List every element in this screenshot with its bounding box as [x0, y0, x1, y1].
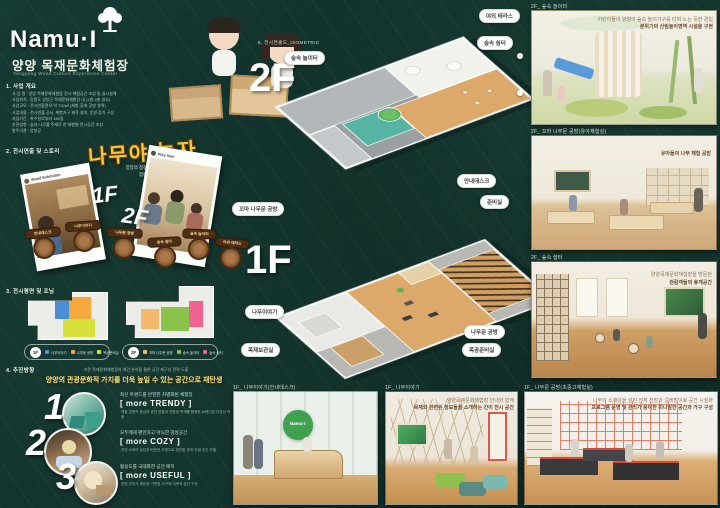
item-sub-2: 자연 소재의 질감과 따뜻한 조명으로 편안한 휴게·관람 공간 연출 [121, 448, 233, 453]
floor-wood [234, 475, 377, 504]
bookshelf [536, 274, 569, 361]
legend-item: 숲속 쉼터 [203, 350, 222, 355]
card-handle: Play time [158, 152, 175, 159]
render-caption-bold: 프로그램 운영 및 관리가 용이한 미니멀한 공간과 가구 구성 [553, 404, 713, 411]
stump-icon [188, 238, 211, 261]
ottoman [459, 482, 485, 497]
person-student [656, 441, 664, 459]
legend-item: 목공준비실 [97, 350, 119, 355]
logo-wordmark: Namu·I [10, 26, 97, 54]
legend-2f: 2F 꼬마 나무문 공방 숲속 놀이터 숲속 쉼터 [122, 344, 218, 360]
stool [646, 336, 653, 348]
work-bench [613, 461, 678, 480]
person [698, 313, 707, 339]
visitor [243, 435, 253, 469]
kids-table [650, 202, 694, 214]
section1-heading: 1. 사업 개요 [6, 82, 36, 90]
zone-orange [69, 297, 91, 319]
direction-intro: 기존 목재문화체험장의 여건 분석을 통한 공간 재구성 전략 도출 [36, 367, 236, 373]
info-screen [396, 423, 427, 445]
render-school-workshop: 나무의 소재감을 살린 전체 천장과 걸레받이로 공간 시설화 프로그램 운영 … [524, 391, 718, 505]
section2-heading: 2. 전시연출 및 스토리 [6, 147, 60, 155]
render-caption: 나무의 소재감을 살린 전체 천장과 걸레받이로 공간 시설화 [553, 397, 713, 404]
item-number-2: 2 [26, 422, 46, 464]
work-table [428, 311, 440, 317]
kids-table [547, 211, 595, 225]
render-caption-bold: 분위기의 산림놀이영역 시설을 구현 [563, 23, 713, 30]
avatar-icon [24, 178, 30, 184]
callout-wood-workshop: 나무문 공방 [464, 325, 505, 339]
section3-heading: 3. 전시평면 및 조닝 [6, 287, 54, 295]
legend-item: 숲속 놀이터 [177, 350, 200, 355]
section4-heading: 4. 추진방향 [6, 366, 34, 374]
render-label-wood-story: 1F_ 나무이야기 [385, 384, 420, 391]
tree-post [669, 40, 680, 103]
item-number-3: 3 [56, 456, 76, 498]
poster-title-en: Yangyang Wood Culture Experience Center [13, 71, 118, 76]
inner-room [298, 312, 343, 338]
zone-blue [55, 301, 69, 319]
play-structure [595, 31, 643, 97]
kids-table [609, 215, 664, 230]
zone-badge: 숲속 놀이터 [181, 228, 216, 263]
item-keyword-1: [ more TRENDY ] [120, 399, 192, 408]
zone-peach [141, 309, 159, 329]
item-keyword-2: [ more COZY ] [120, 437, 180, 446]
zone-badge: 나무이야기 [65, 220, 103, 256]
legend-1f: 1F 나무이야기 나무문 공방 목공준비실 [24, 344, 110, 360]
render-forest-rest: 양양목재문화체험장을 방문한 관람객들의 휴게공간 [531, 261, 717, 378]
legend-item: 나무이야기 [45, 350, 67, 355]
zone-pink [189, 301, 203, 327]
stump-icon [32, 236, 56, 260]
render-caption-bold: 관람객들의 휴게공간 [582, 279, 712, 286]
receptionist [303, 437, 312, 451]
person-child [444, 439, 452, 459]
item-sub-1: 체험 콘텐츠 중심의 공간 연출과 친환경 목재를 활용한 트렌디한 디자인 적… [121, 410, 233, 421]
render-label-school-workshop: 1F_ 나무문 공방(초중고체험실) [524, 384, 593, 391]
kid-boy [204, 20, 244, 78]
render-kids-workshop: 유아들의 나무 체험 공방 [531, 135, 717, 250]
presentation-board: Namu·I 양양 목재문화체험장 Yangyang Wood Culture … [0, 0, 720, 508]
callout-woodwork-prep: 목공준비실 [462, 343, 501, 357]
person [543, 70, 552, 96]
direction-headline: 양양의 관광문화적 가치를 더욱 높일 수 있는 공간으로 재탄생 [28, 375, 240, 385]
umbrella-icon [443, 60, 465, 73]
floor-label-1f-center: 1F [245, 238, 292, 283]
callout-forest-playground: 숲속 놀이터 [284, 51, 325, 65]
red-door-frame [488, 412, 506, 461]
work-table [402, 315, 414, 321]
item-photo-3 [74, 461, 118, 505]
person-child [470, 446, 478, 464]
person-student [571, 439, 579, 457]
ottoman [483, 475, 507, 490]
legend-item: 나무문 공방 [71, 350, 94, 355]
render-caption: 양양목재문화체험장 안내와 함께 [394, 397, 514, 404]
render-caption-bold: 목재와 관련된 정보들을 소개하는 간이 전시 공간 [394, 404, 514, 411]
legend-item: 꼬마 나무문 공방 [143, 350, 173, 355]
cafe-table [628, 343, 639, 354]
callout-forest-rest: 숲속 쉼터 [477, 36, 513, 50]
item-number-1: 1 [44, 386, 64, 428]
callout-wood-story: 나무이야기 [245, 305, 284, 319]
floor-circle [565, 99, 628, 117]
callout-wood-storage: 목재보관실 [241, 343, 280, 357]
callout-info-desk: 안내데스크 [457, 174, 496, 188]
reception-desk [274, 450, 343, 479]
cafe-table [472, 100, 482, 106]
color-dot [203, 350, 207, 354]
person-student [625, 444, 633, 462]
zone-badge: 안내데스크 [24, 226, 63, 264]
slide [553, 57, 595, 80]
cafe-table [485, 88, 495, 94]
color-dot [45, 350, 49, 354]
color-dot [71, 350, 75, 354]
zone-badge: 나무문 공방 [105, 227, 143, 263]
green-machine [395, 288, 405, 294]
visitor [254, 439, 263, 469]
person-child [569, 195, 577, 211]
legend-floor: 1F [30, 347, 41, 358]
callout-kids-workshop: 꼬마 나무문 공방 [232, 202, 284, 216]
stump-icon [154, 245, 177, 268]
render-info-desk: Namu·I [233, 391, 378, 505]
person-child [558, 86, 565, 102]
stump-icon [72, 229, 95, 252]
person-child [620, 199, 628, 215]
work-table [404, 300, 415, 306]
isometric-section-label: 5. 전시연출도_ISOMETRIC [258, 40, 320, 46]
stool [613, 329, 620, 341]
cafe-table [460, 90, 470, 96]
render-label-playground: 2F_ 숲속 놀이터 [531, 3, 567, 10]
person [694, 68, 703, 93]
connector-dot [517, 53, 523, 59]
section1-overview-list: 사 업 명 : 양양 목재문화체험장 전시·체험공간 조성 및 실시설계 사업위… [12, 91, 232, 134]
desk-logo-text: Namu·I [283, 421, 313, 426]
item-sub-3: 운영·관리가 용이한 가변형 가구와 다목적 공간 구성 [121, 482, 233, 487]
render-caption-bold: 유아들의 나무 체험 공방 [591, 150, 711, 157]
color-dot [177, 350, 181, 354]
tree-icon [93, 6, 127, 32]
logo-sign: Namu·I [283, 410, 313, 440]
avatar-icon [151, 150, 157, 156]
render-label-info-desk: 1F_ 나무이야기(안내데스크) [233, 384, 296, 391]
umbrella-icon [402, 64, 424, 77]
floor-label-1f-left: 1F [91, 181, 119, 210]
stump-icon [112, 236, 135, 259]
callout-prep-room: 준비실 [480, 195, 509, 209]
render-playground: 어린이들이 양양의 숲속 놀이기구를 타며 노는 듯한 경험 분위기의 산림놀이… [531, 10, 717, 125]
item-lead-2: 모두에게 편안하고 아늑한 감성공간 [120, 430, 236, 436]
color-dot [97, 350, 101, 354]
floor-circle [639, 106, 687, 120]
connector-dot [517, 90, 523, 96]
zone-yellow [63, 319, 95, 337]
render-caption: 어린이들이 양양의 숲속 놀이기구를 타며 노는 듯한 경험 [563, 16, 713, 23]
item-keyword-3: [ more USEFUL ] [120, 471, 191, 480]
callout-outdoor-terrace: 야외 테라스 [479, 9, 520, 23]
person [694, 188, 703, 212]
item-lead-1: 최신 트렌드를 반영한 차별화된 체험장 [120, 392, 236, 398]
zone-green [161, 307, 189, 331]
item-lead-3: 활용도를 극대화한 공간 배치 [120, 464, 236, 470]
render-label-kids-workshop: 2F_ 꼬마 나무문 공방(유아체험실) [531, 128, 606, 135]
stump-icon [219, 246, 243, 270]
render-label-forest-rest: 2F_ 숲속 쉼터 [531, 254, 563, 261]
tv-screen [554, 170, 591, 193]
cafe-table [595, 333, 605, 343]
zone-badge: 숲속 쉼터 [147, 236, 183, 272]
color-dot [143, 350, 147, 354]
overview-line: 발주기관 : 양양군 [12, 128, 232, 134]
render-wood-story: 양양목재문화체험장 안내와 함께 목재와 관련된 정보들을 소개하는 간이 전시… [385, 391, 518, 505]
legend-floor: 2F [128, 347, 139, 358]
render-caption: 양양목재문화체험장을 방문한 [582, 271, 712, 278]
